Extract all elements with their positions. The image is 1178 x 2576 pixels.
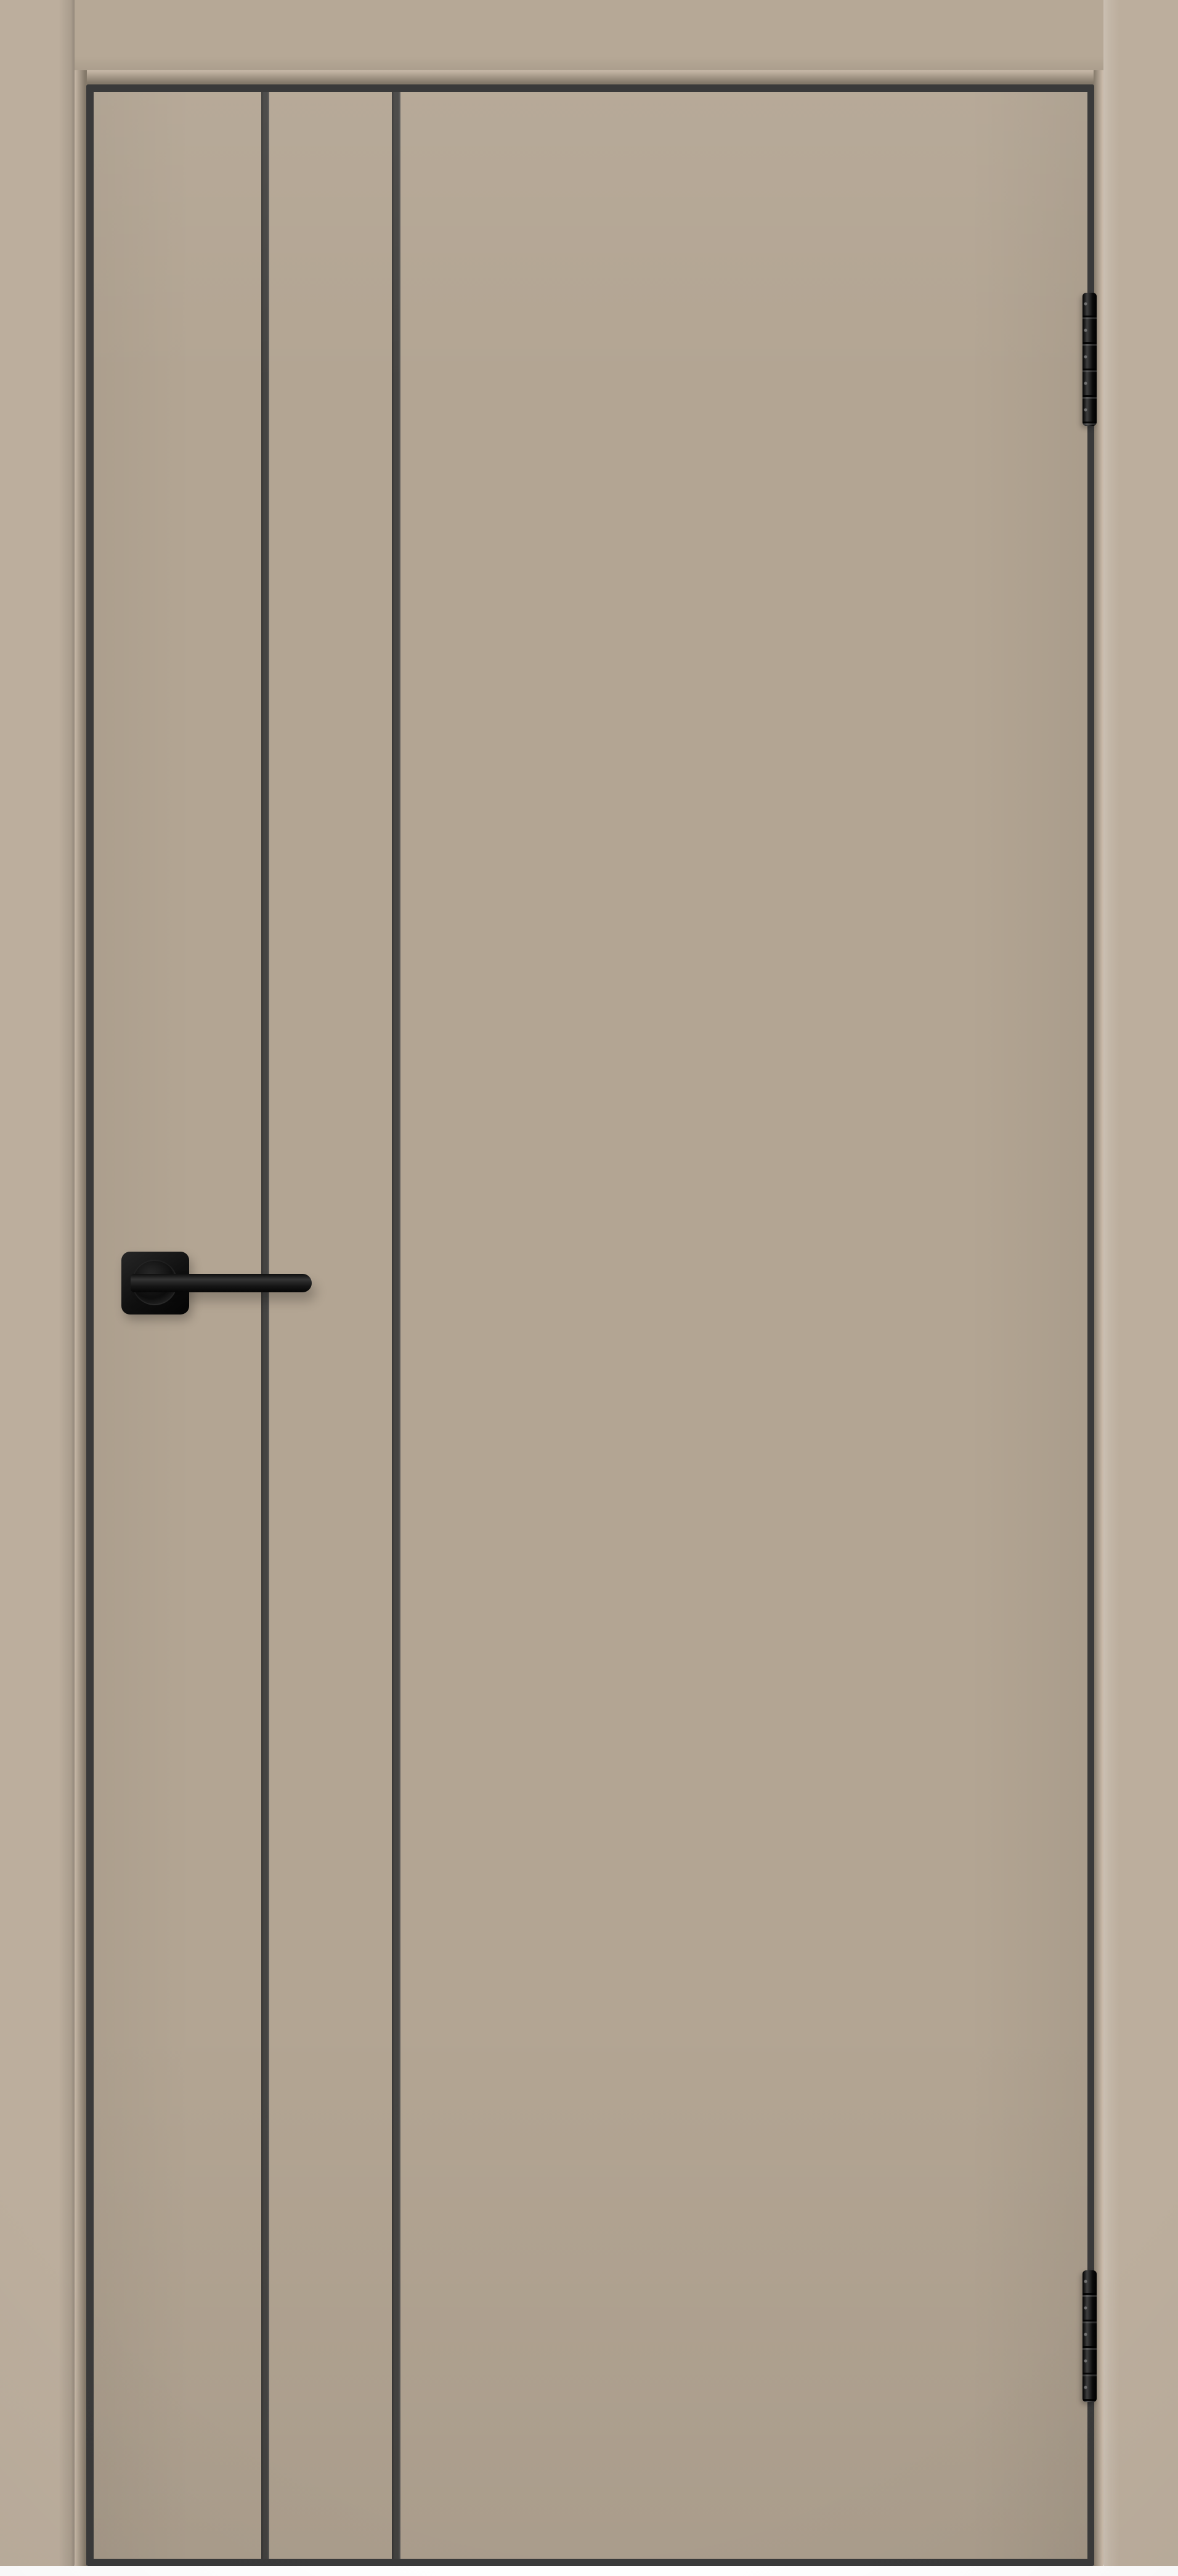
door-reveal-left [75, 70, 87, 2570]
door-face [94, 92, 1087, 2559]
floor-white-margin [0, 2566, 1178, 2576]
door-frame-casing-right [1103, 0, 1178, 2570]
door-leaf [86, 84, 1094, 2566]
door-reveal-top [75, 70, 1103, 85]
door-handle-lever [131, 1274, 312, 1292]
door-reveal-right [1094, 70, 1103, 2569]
hinge-top [1083, 293, 1097, 426]
molding-groove-line-2 [392, 92, 400, 2559]
hinge-bottom [1083, 2270, 1097, 2402]
molding-groove-line-1 [261, 92, 269, 2559]
door-frame-head-casing [75, 0, 1103, 70]
door-frame-casing-left [0, 0, 75, 2570]
door-product-photo [0, 0, 1178, 2576]
